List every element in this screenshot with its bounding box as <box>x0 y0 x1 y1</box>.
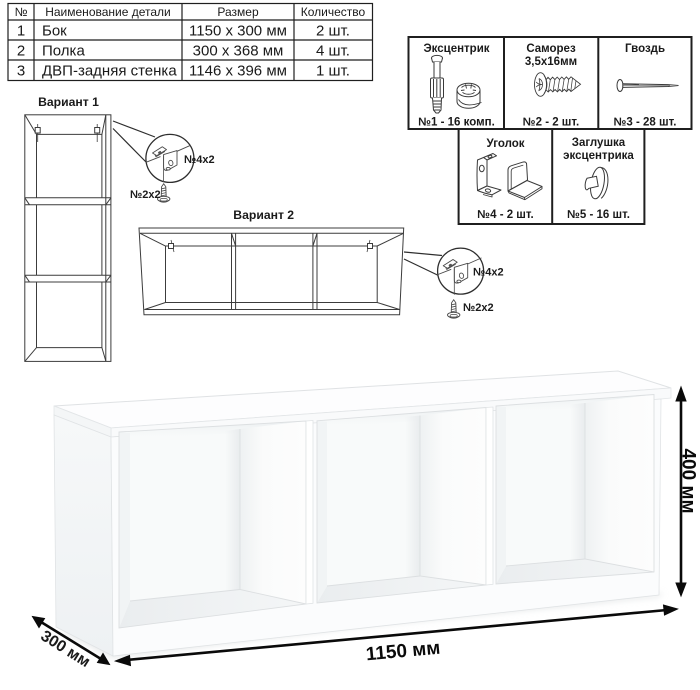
svg-text:№2х2: №2х2 <box>130 189 161 201</box>
svg-text:3: 3 <box>17 63 25 80</box>
svg-text:№1 - 16 комп.: №1 - 16 комп. <box>418 117 495 129</box>
svg-text:№3 - 28 шт.: №3 - 28 шт. <box>614 117 677 129</box>
svg-text:№2х2: №2х2 <box>463 302 494 314</box>
svg-text:1150 x 300 мм: 1150 x 300 мм <box>189 23 287 40</box>
svg-text:Вариант 1: Вариант 1 <box>38 95 99 109</box>
svg-text:1 шт.: 1 шт. <box>316 63 350 80</box>
svg-text:Бок: Бок <box>42 23 67 40</box>
svg-text:400 мм: 400 мм <box>678 448 699 513</box>
svg-text:№4х2: №4х2 <box>473 267 504 279</box>
svg-text:Вариант 2: Вариант 2 <box>233 208 294 222</box>
svg-text:№2 - 2 шт.: №2 - 2 шт. <box>523 117 579 129</box>
svg-text:№4 - 2 шт.: №4 - 2 шт. <box>477 209 533 221</box>
svg-text:Саморез: Саморез <box>526 43 576 55</box>
svg-text:1146 x 396 мм: 1146 x 396 мм <box>189 63 287 80</box>
svg-text:Гвоздь: Гвоздь <box>625 43 665 55</box>
svg-text:2 шт.: 2 шт. <box>316 23 350 40</box>
svg-text:4 шт.: 4 шт. <box>316 43 350 60</box>
svg-text:ДВП-задняя стенка: ДВП-задняя стенка <box>42 63 177 80</box>
svg-text:2: 2 <box>17 43 25 60</box>
svg-text:№: № <box>15 5 28 19</box>
svg-text:№4х2: №4х2 <box>184 154 215 166</box>
svg-text:Полка: Полка <box>42 43 85 60</box>
svg-text:Размер: Размер <box>217 5 259 19</box>
svg-text:№5 - 16 шт.: №5 - 16 шт. <box>567 209 630 221</box>
svg-text:1: 1 <box>17 23 25 40</box>
svg-text:300 x 368 мм: 300 x 368 мм <box>193 43 284 60</box>
svg-text:Наименование детали: Наименование детали <box>45 5 171 19</box>
svg-text:3,5х16мм: 3,5х16мм <box>525 56 577 68</box>
svg-text:эксцентрика: эксцентрика <box>563 150 634 162</box>
svg-text:Количество: Количество <box>301 5 366 19</box>
svg-text:1150 мм: 1150 мм <box>365 638 441 666</box>
svg-text:Эксцентрик: Эксцентрик <box>423 43 489 55</box>
svg-text:Уголок: Уголок <box>486 138 524 150</box>
svg-text:Заглушка: Заглушка <box>572 137 626 149</box>
